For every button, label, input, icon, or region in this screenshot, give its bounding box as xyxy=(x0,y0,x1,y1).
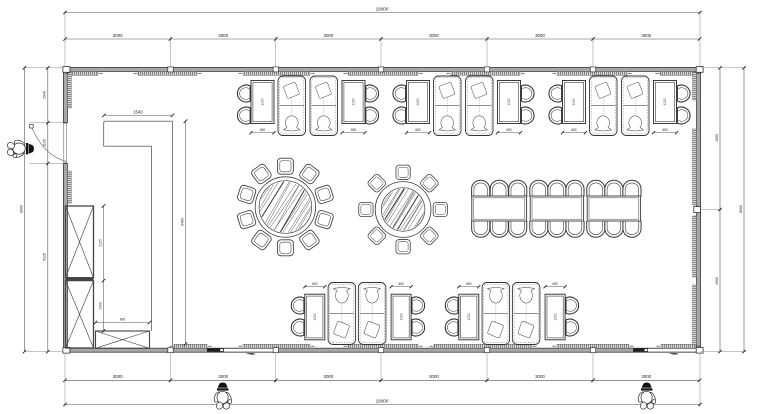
svg-text:8000: 8000 xyxy=(19,205,23,213)
svg-text:8000: 8000 xyxy=(739,205,743,213)
svg-text:1200: 1200 xyxy=(416,98,420,105)
svg-text:3000: 3000 xyxy=(113,374,123,379)
svg-text:3000: 3000 xyxy=(535,33,545,38)
svg-text:3000: 3000 xyxy=(641,374,651,379)
svg-text:650: 650 xyxy=(571,128,577,132)
svg-text:3000: 3000 xyxy=(535,374,545,379)
svg-text:1200: 1200 xyxy=(572,98,576,105)
svg-text:18000: 18000 xyxy=(376,6,389,11)
svg-text:3000: 3000 xyxy=(324,374,334,379)
svg-text:3000: 3000 xyxy=(218,374,228,379)
svg-text:1200: 1200 xyxy=(553,313,557,320)
svg-text:1200: 1200 xyxy=(261,98,265,105)
svg-text:1200: 1200 xyxy=(313,313,317,320)
svg-text:650: 650 xyxy=(662,128,668,132)
svg-text:6460: 6460 xyxy=(180,218,184,226)
svg-text:650: 650 xyxy=(351,128,357,132)
svg-text:3000: 3000 xyxy=(113,33,123,38)
svg-text:650: 650 xyxy=(260,128,266,132)
svg-text:1200: 1200 xyxy=(507,98,511,105)
svg-text:650: 650 xyxy=(466,282,472,286)
svg-text:1200: 1200 xyxy=(352,98,356,105)
svg-text:650: 650 xyxy=(312,282,318,286)
svg-text:1450: 1450 xyxy=(98,302,102,310)
svg-text:3000: 3000 xyxy=(641,33,651,38)
svg-text:1200: 1200 xyxy=(663,98,667,105)
svg-text:1200: 1200 xyxy=(399,313,403,320)
svg-text:650: 650 xyxy=(415,128,421,132)
svg-text:650: 650 xyxy=(398,282,404,286)
svg-text:1135: 1135 xyxy=(43,139,47,147)
svg-text:900: 900 xyxy=(120,318,126,322)
svg-text:1540: 1540 xyxy=(133,110,143,115)
svg-text:2125: 2125 xyxy=(98,239,102,247)
svg-text:650: 650 xyxy=(506,128,512,132)
svg-text:1200: 1200 xyxy=(467,313,471,320)
svg-text:18000: 18000 xyxy=(376,398,389,403)
svg-text:4000: 4000 xyxy=(715,277,719,285)
svg-text:5325: 5325 xyxy=(43,253,47,261)
svg-text:3000: 3000 xyxy=(429,374,439,379)
svg-text:1540: 1540 xyxy=(43,91,47,99)
svg-text:650: 650 xyxy=(552,282,558,286)
svg-text:3000: 3000 xyxy=(218,33,228,38)
svg-text:3000: 3000 xyxy=(429,33,439,38)
svg-text:4000: 4000 xyxy=(715,134,719,142)
svg-text:3000: 3000 xyxy=(324,33,334,38)
